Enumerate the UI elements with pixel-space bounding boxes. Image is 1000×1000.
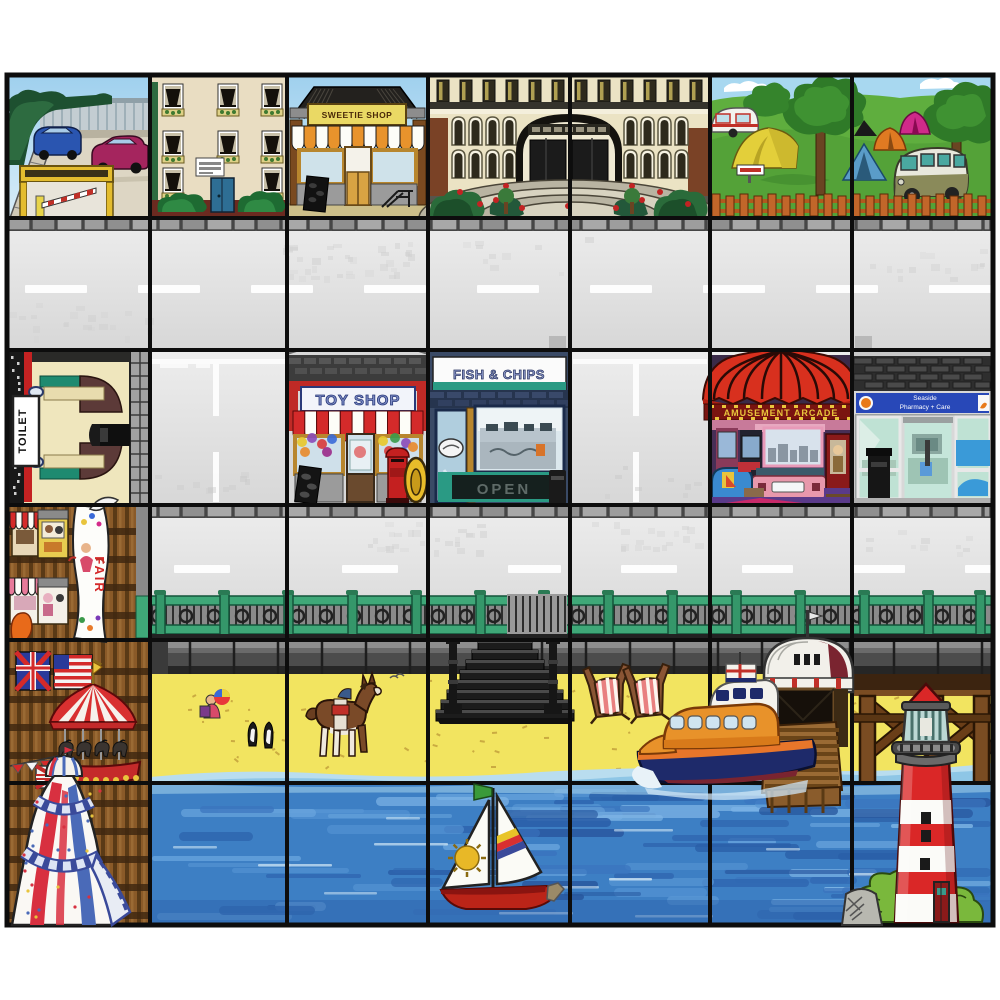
svg-text:SWEETIE SHOP: SWEETIE SHOP [322,110,393,120]
svg-text:AMUSEMENT ARCADE: AMUSEMENT ARCADE [724,408,839,418]
svg-text:TOILET: TOILET [17,409,29,454]
svg-text:FISH & CHIPS: FISH & CHIPS [453,367,545,382]
svg-text:Seaside: Seaside [913,395,937,402]
svg-text:FAIR: FAIR [92,556,107,594]
svg-text:Pharmacy + Care: Pharmacy + Care [900,404,951,411]
svg-text:TOY SHOP: TOY SHOP [316,392,401,409]
svg-text:OPEN: OPEN [477,481,532,498]
